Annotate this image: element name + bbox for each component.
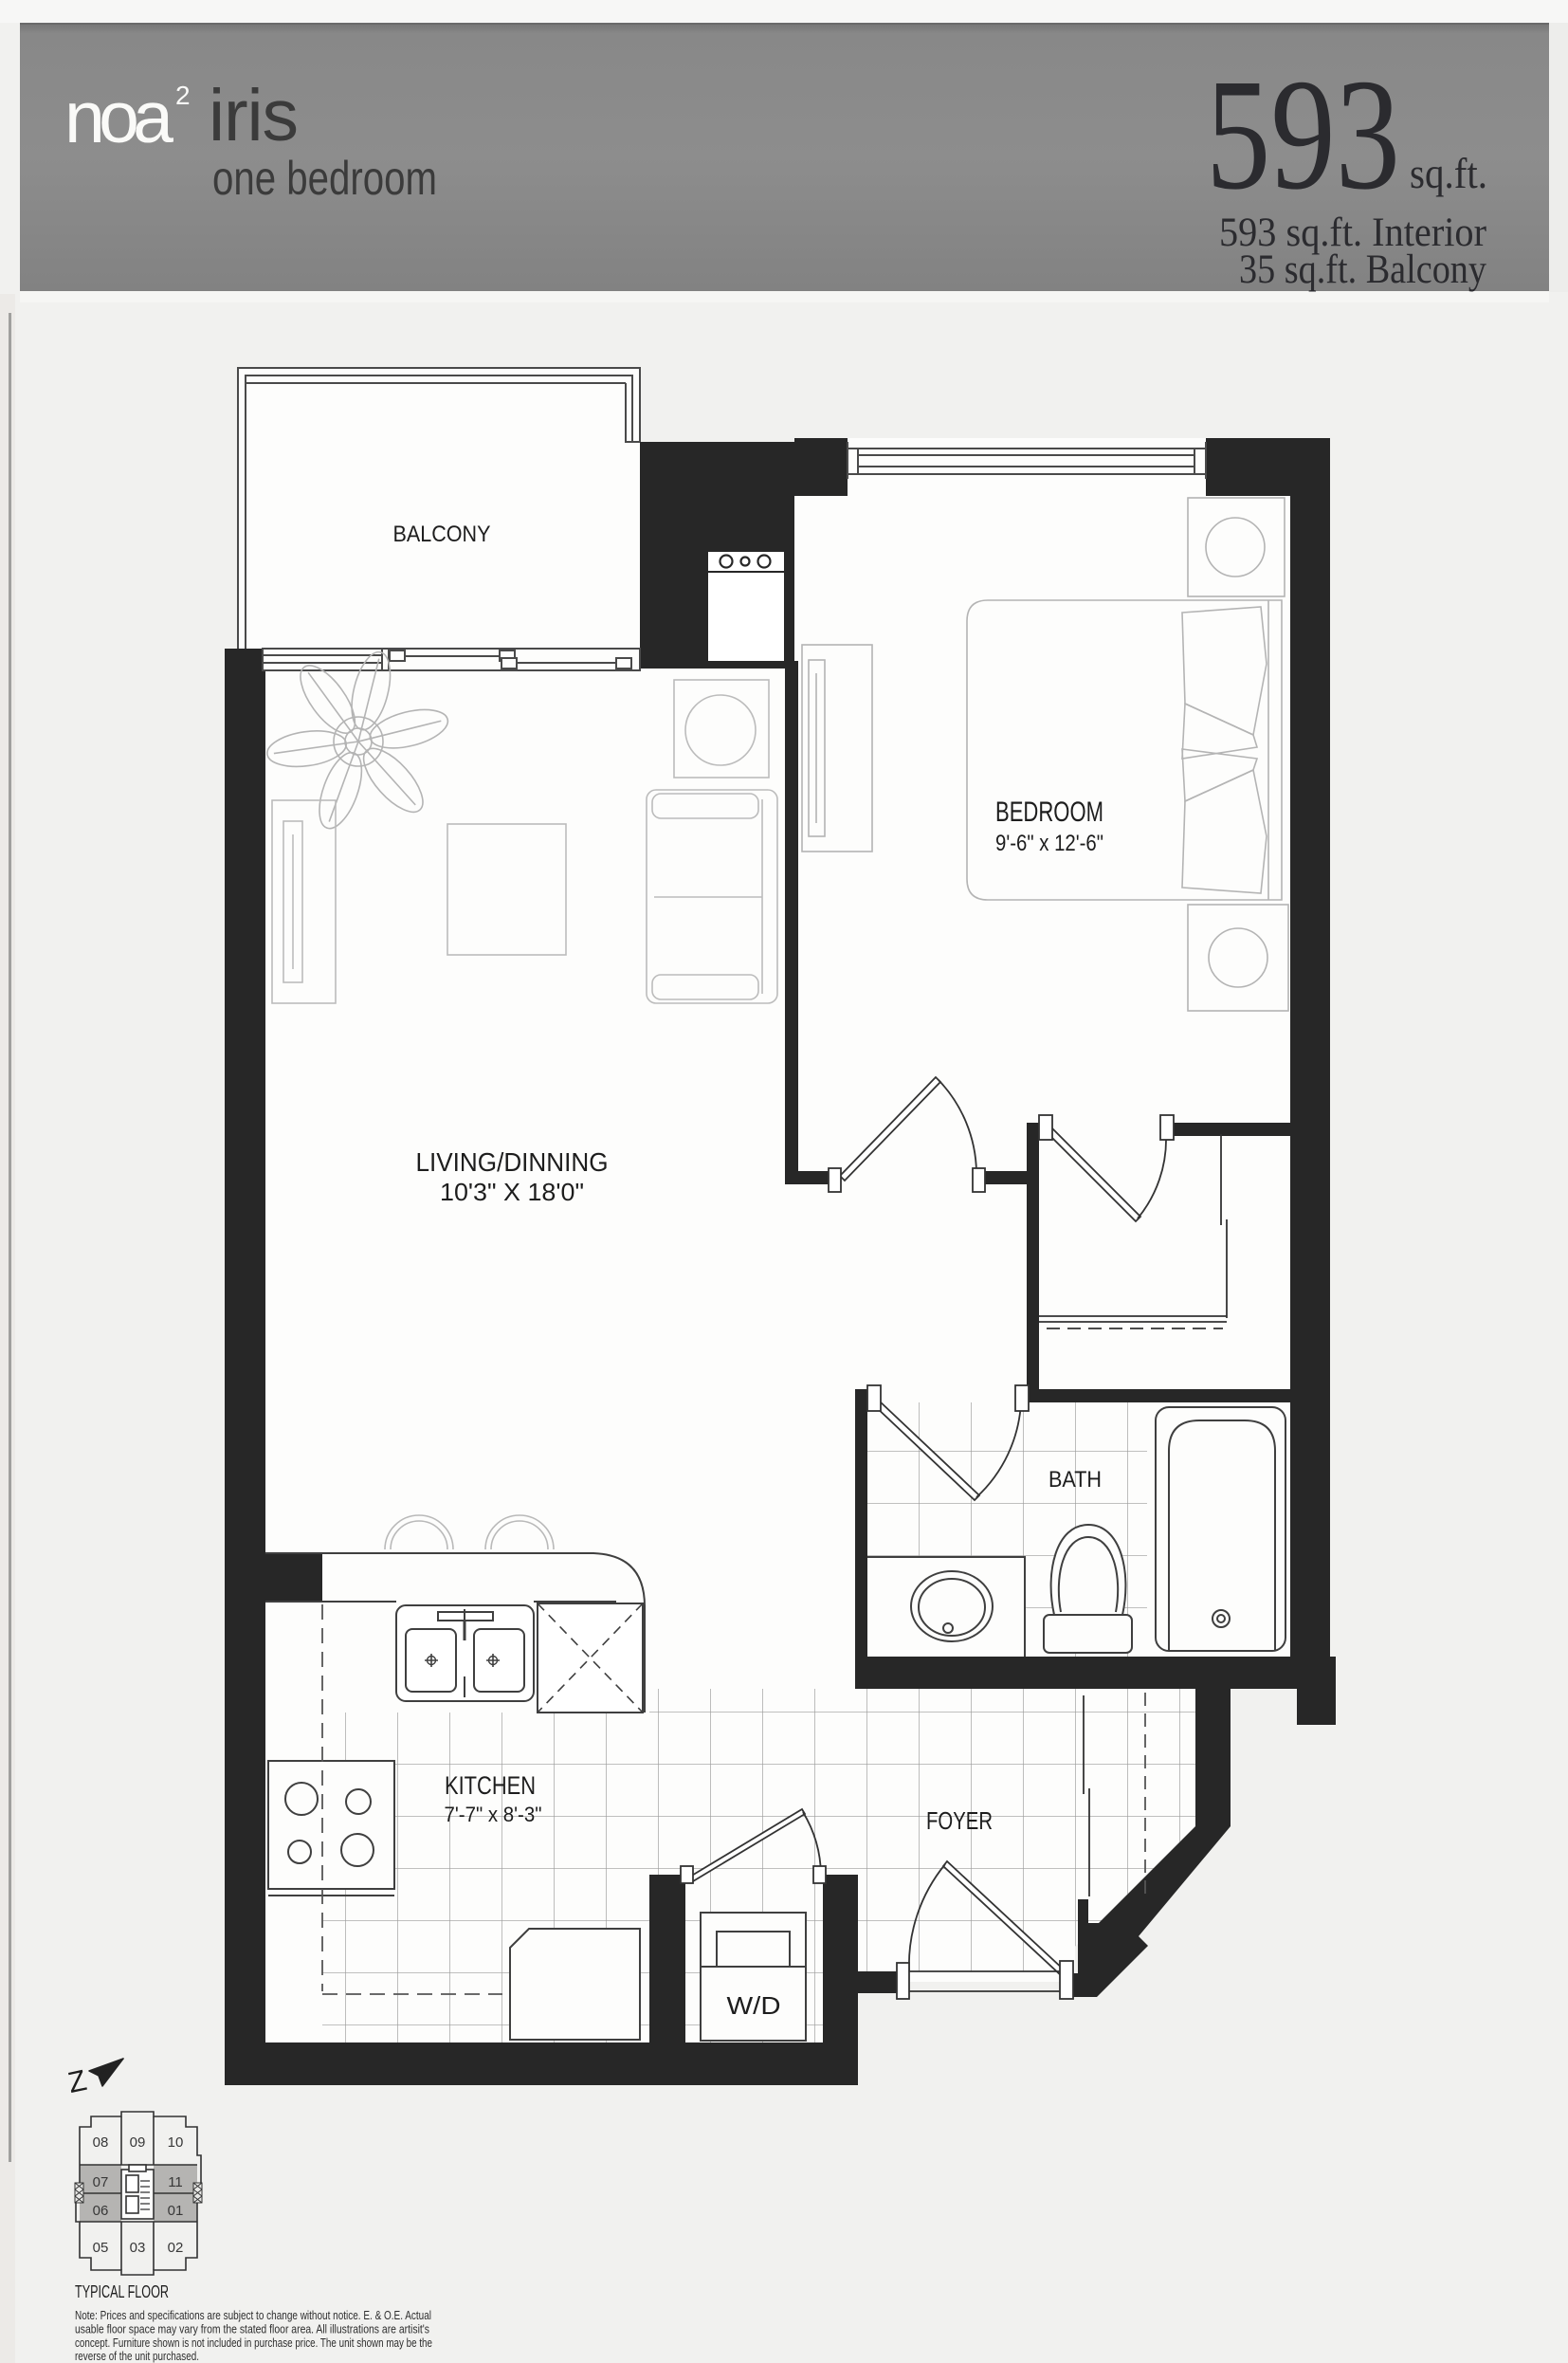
svg-text:2: 2 bbox=[175, 81, 191, 110]
svg-text:BALCONY: BALCONY bbox=[393, 522, 491, 547]
svg-text:usable floor space may vary fr: usable floor space may vary from the sta… bbox=[75, 2322, 429, 2336]
svg-text:08: 08 bbox=[93, 2134, 109, 2151]
svg-text:9'-6" x 12'-6": 9'-6" x 12'-6" bbox=[995, 831, 1103, 856]
svg-text:Note: Prices and specification: Note: Prices and specifications are subj… bbox=[75, 2308, 431, 2322]
svg-text:sq.ft.: sq.ft. bbox=[1410, 149, 1487, 197]
svg-text:10: 10 bbox=[168, 2134, 184, 2151]
svg-text:03: 03 bbox=[130, 2240, 146, 2256]
svg-text:06: 06 bbox=[93, 2203, 109, 2219]
svg-text:01: 01 bbox=[168, 2203, 184, 2219]
svg-text:09: 09 bbox=[130, 2134, 146, 2151]
svg-text:02: 02 bbox=[168, 2240, 184, 2256]
svg-text:7'-7" x 8'-3": 7'-7" x 8'-3" bbox=[445, 1803, 542, 1826]
svg-text:05: 05 bbox=[93, 2240, 109, 2256]
svg-text:11: 11 bbox=[168, 2174, 183, 2190]
svg-text:reverse of the unit purchased.: reverse of the unit purchased. bbox=[75, 2349, 199, 2363]
svg-text:LIVING/DINNING: LIVING/DINNING bbox=[416, 1147, 609, 1177]
svg-text:TYPICAL FLOOR: TYPICAL FLOOR bbox=[75, 2282, 169, 2301]
svg-text:35 sq.ft. Balcony: 35 sq.ft. Balcony bbox=[1239, 247, 1486, 292]
svg-text:concept. Furniture shown is no: concept. Furniture shown is not included… bbox=[75, 2336, 432, 2350]
svg-text:BEDROOM: BEDROOM bbox=[995, 797, 1103, 828]
svg-text:iris: iris bbox=[209, 75, 299, 156]
svg-text:593: 593 bbox=[1206, 46, 1400, 223]
svg-text:BATH: BATH bbox=[1048, 1467, 1102, 1493]
svg-text:W/D: W/D bbox=[727, 1991, 781, 2020]
svg-text:one bedroom: one bedroom bbox=[212, 152, 437, 205]
svg-text:10'3" X 18'0": 10'3" X 18'0" bbox=[440, 1178, 584, 1206]
svg-text:FOYER: FOYER bbox=[926, 1806, 993, 1835]
svg-text:07: 07 bbox=[93, 2174, 109, 2190]
svg-text:noa: noa bbox=[64, 77, 173, 158]
svg-text:KITCHEN: KITCHEN bbox=[445, 1771, 536, 1800]
